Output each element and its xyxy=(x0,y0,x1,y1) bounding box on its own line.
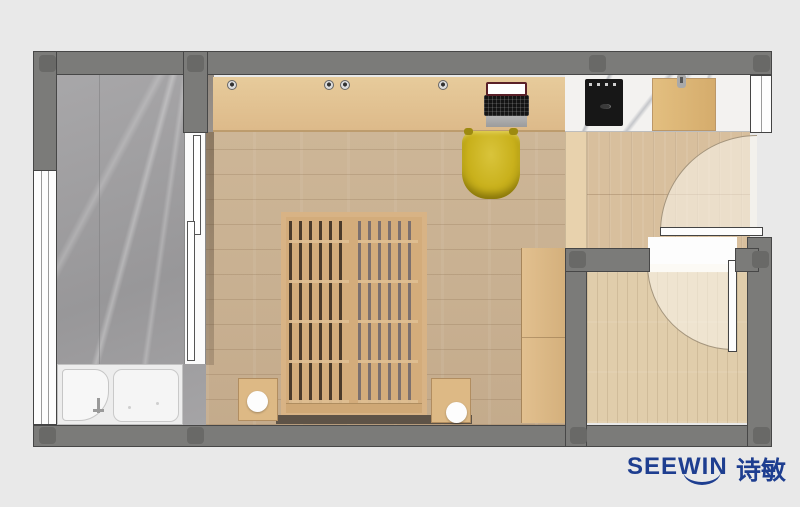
wall-bedroom-right xyxy=(565,248,587,447)
second-room-door-leaf xyxy=(728,260,737,352)
column xyxy=(569,251,586,268)
bed-footboard xyxy=(286,403,422,413)
column xyxy=(570,427,587,444)
stove-control-knobs xyxy=(589,83,619,86)
window-mullion xyxy=(41,171,42,424)
column xyxy=(187,55,204,72)
tub-drain xyxy=(128,406,131,409)
laptop-screen xyxy=(486,82,527,96)
wall-bottom xyxy=(33,425,772,447)
column xyxy=(39,427,56,444)
yellow-desk-chair xyxy=(462,131,520,199)
brand-logo-chinese: 诗敏 xyxy=(736,451,786,487)
wardrobe-knob xyxy=(438,80,448,90)
column xyxy=(753,55,770,72)
bed-slats-right xyxy=(358,221,418,403)
chair-armrest xyxy=(464,128,473,135)
doorway-threshold-floor xyxy=(565,132,587,248)
bathtub-unit xyxy=(57,364,183,425)
stove-burner xyxy=(600,104,610,109)
sliding-door-panel xyxy=(187,221,195,361)
second-room-door-swing-area xyxy=(647,264,733,350)
column xyxy=(589,55,606,72)
tub-jet xyxy=(156,402,159,405)
cooktop-stove xyxy=(585,79,623,126)
floor-plan-render: SEEWIN 诗敏 xyxy=(0,0,800,507)
column xyxy=(187,427,204,444)
bed-slats-left xyxy=(289,221,349,403)
board-handle xyxy=(677,74,686,88)
column xyxy=(752,251,769,268)
window-left xyxy=(33,170,57,425)
bedside-lamp-right xyxy=(446,402,467,423)
faucet-handle xyxy=(93,409,104,412)
cutting-board xyxy=(652,78,716,131)
slatted-bed xyxy=(281,212,427,418)
window-mullion xyxy=(761,76,762,132)
window-mullion xyxy=(48,171,49,424)
wall-top xyxy=(33,51,772,75)
door-swing-arc xyxy=(647,264,733,350)
door-swing-arc xyxy=(660,135,757,232)
shower-tray xyxy=(62,369,109,421)
laptop-base xyxy=(486,115,527,127)
handle-slot xyxy=(680,77,683,83)
cabinet-seam xyxy=(522,337,565,338)
column xyxy=(39,55,56,72)
brand-logo-swoosh xyxy=(683,471,721,485)
bathroom-sliding-door xyxy=(184,133,206,364)
laptop-keyboard xyxy=(484,95,529,116)
wardrobe-knob xyxy=(324,80,334,90)
bedside-lamp-left xyxy=(247,391,268,412)
column xyxy=(753,427,770,444)
bathtub xyxy=(113,369,179,422)
side-cabinet xyxy=(521,248,565,423)
hall-door-swing-area xyxy=(660,135,757,232)
wardrobe-knob xyxy=(340,80,350,90)
sliding-door-panel xyxy=(193,135,201,235)
wardrobe-knob xyxy=(227,80,237,90)
hall-door-leaf xyxy=(660,227,763,236)
chair-armrest xyxy=(509,128,518,135)
window-right-top xyxy=(750,75,772,133)
